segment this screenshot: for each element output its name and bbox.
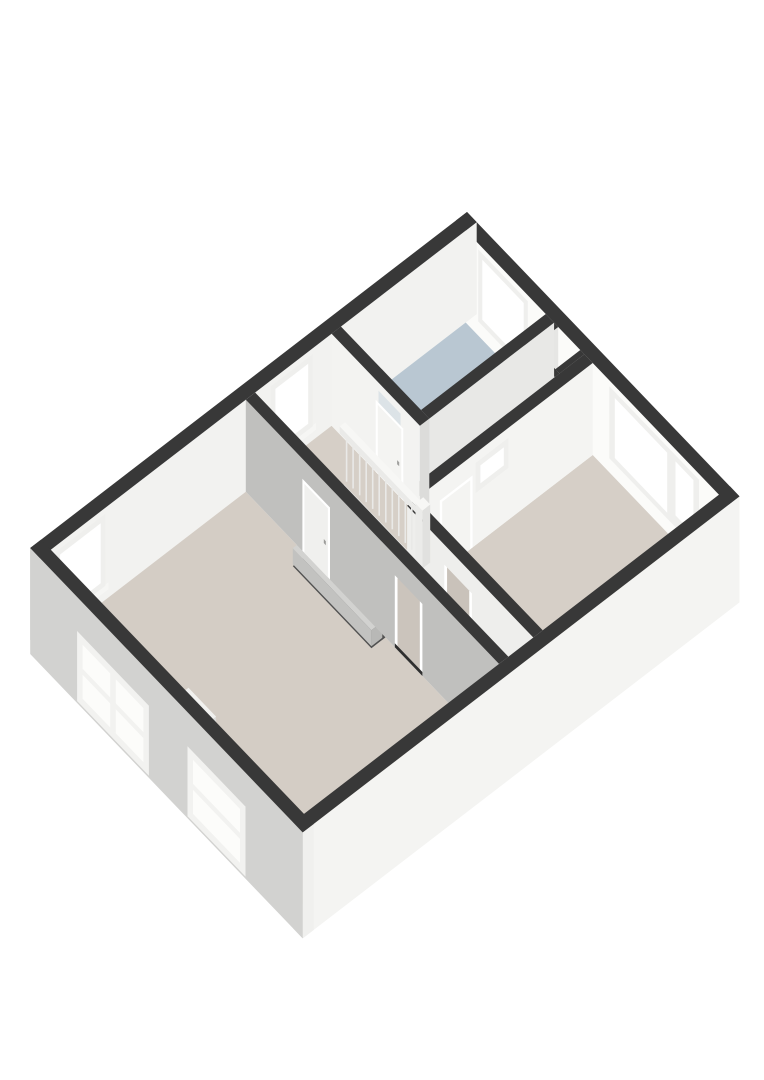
- hall-doorway-jamb-left: [395, 575, 398, 650]
- floorplan-3d-render: [0, 0, 764, 1080]
- hall-doorway-jamb-right: [420, 601, 423, 676]
- facade-sw-wall-se-face: [303, 824, 314, 938]
- floorplan-canvas: [0, 0, 764, 1080]
- stair-newel-post-se-face: [422, 505, 430, 569]
- stair-newel-post-sw-face: [416, 503, 423, 568]
